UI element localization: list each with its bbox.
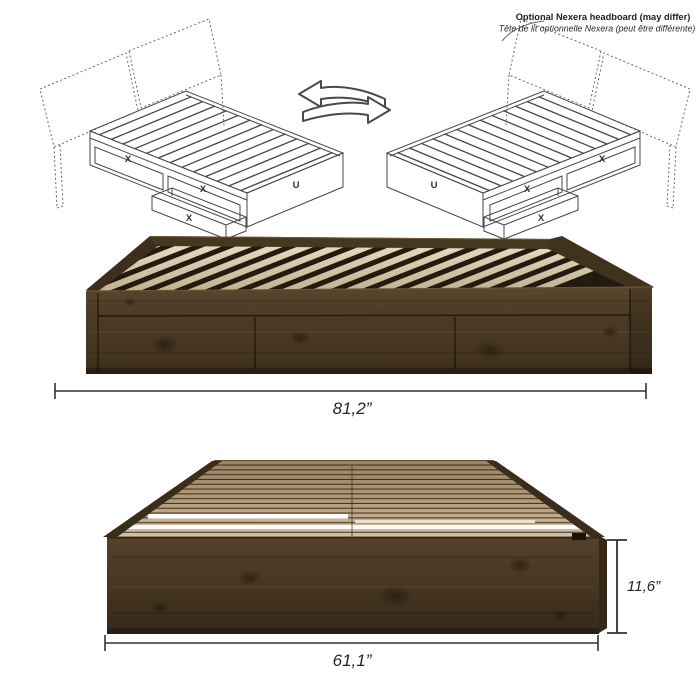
length-dimension-label: 81,2”	[333, 399, 373, 418]
right-drawer-label-3: X	[538, 213, 545, 224]
right-drawer-label-2: X	[524, 184, 531, 195]
left-drawer-label-2: X	[200, 184, 207, 195]
left-drawer-label-3: X	[186, 213, 193, 224]
height-dimension-label: 11,6”	[627, 578, 661, 595]
product-dimension-sheet: X X X U X X X U Optional Nexera headboar…	[0, 0, 700, 700]
width-dimension-label: 61,1”	[333, 651, 373, 670]
right-drawer-label-1: X	[599, 154, 606, 165]
left-underbed-label: U	[293, 180, 300, 191]
annotation-subtitle: Tête de lit optionnelle Nexera (peut êtr…	[499, 24, 696, 34]
left-drawer-label-1: X	[125, 154, 132, 165]
right-underbed-label: U	[431, 180, 438, 191]
annotation-title: Optional Nexera headboard (may differ)	[516, 12, 691, 22]
